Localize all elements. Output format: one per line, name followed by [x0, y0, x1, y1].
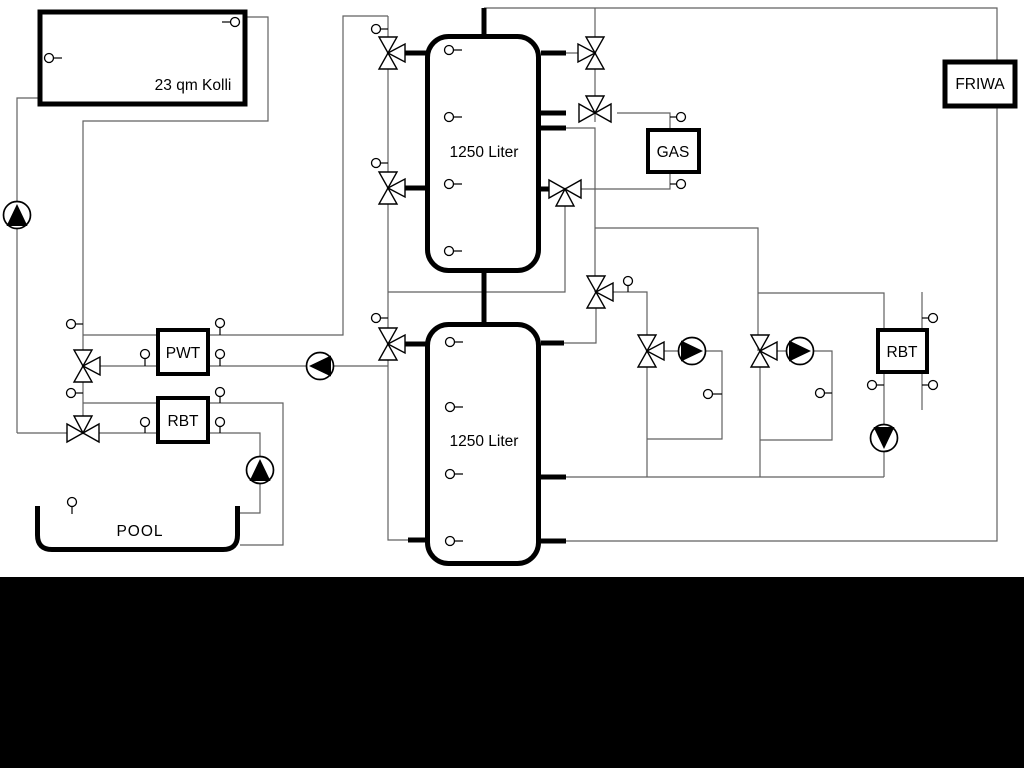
- temperature-sensor: [45, 54, 54, 63]
- temperature-sensor: [446, 403, 455, 412]
- temperature-sensor: [68, 498, 77, 507]
- three-way-valve-tank1-left-mid: [379, 172, 405, 204]
- temperature-sensor: [677, 180, 686, 189]
- three-way-valve-tank2-left: [379, 328, 405, 360]
- temperature-sensor: [445, 113, 454, 122]
- temperature-sensor: [445, 247, 454, 256]
- temperature-sensor: [704, 390, 713, 399]
- rbt-heat-exchanger-pool: RBT: [158, 398, 208, 442]
- pwt-label: PWT: [166, 345, 201, 362]
- gas-label: GAS: [657, 144, 690, 161]
- rbt-heat-exchanger-right: RBT: [878, 330, 927, 372]
- temperature-sensor: [929, 381, 938, 390]
- heating-pump-1: [679, 338, 706, 365]
- temperature-sensor: [677, 113, 686, 122]
- pipe-friwa-loop: [484, 8, 997, 541]
- temperature-sensor: [446, 537, 455, 546]
- temperature-sensor: [216, 319, 225, 328]
- hydraulic-schematic: 23 qm Kolli 1250 Liter 1250 Liter PWT RB…: [0, 0, 1024, 768]
- temperature-sensor: [446, 338, 455, 347]
- buffer-tank-1: 1250 Liter: [428, 37, 539, 271]
- pool-pump: [247, 457, 274, 484]
- three-way-valve-tank1-left-top: [379, 37, 405, 69]
- tank2-label: 1250 Liter: [450, 433, 519, 450]
- pipe-rbt-pool-bottom: [17, 433, 260, 513]
- temperature-sensor: [216, 350, 225, 359]
- three-way-valve-pool: [67, 416, 99, 442]
- temperature-sensor: [929, 314, 938, 323]
- heating-pump-2: [787, 338, 814, 365]
- footer-bar: [0, 577, 1024, 768]
- buffer-tank-2: 1250 Liter: [428, 325, 539, 564]
- pipe-circuit-2: [760, 351, 832, 477]
- three-way-valve-heating-supply: [587, 276, 613, 308]
- friwa-label: FRIWA: [955, 76, 1005, 93]
- schematic-canvas: 23 qm Kolli 1250 Liter 1250 Liter PWT RB…: [0, 0, 1024, 768]
- temperature-sensor: [445, 46, 454, 55]
- temperature-sensor: [816, 389, 825, 398]
- temperature-sensor: [372, 159, 381, 168]
- temperature-sensor: [67, 389, 76, 398]
- three-way-valve-circuit-2: [751, 335, 777, 367]
- temperature-sensor: [216, 388, 225, 397]
- three-way-valve-gas-return: [549, 180, 581, 206]
- solar-pump: [4, 202, 31, 229]
- pwt-charge-pump: [307, 353, 334, 380]
- three-way-valve-circuit-1: [638, 335, 664, 367]
- rbt-right-label: RBT: [887, 344, 919, 361]
- pipe-gas-flow: [617, 113, 670, 128]
- temperature-sensor: [141, 350, 150, 359]
- pipe-valve-header-left: [388, 16, 412, 540]
- temperature-sensor: [868, 381, 877, 390]
- pipe-gas-return: [581, 173, 670, 189]
- temperature-sensor: [372, 314, 381, 323]
- rbt-circulation-pump: [871, 425, 898, 452]
- temperature-sensor: [445, 180, 454, 189]
- pipe-heating-branch-2: [595, 228, 758, 351]
- pool-basin: POOL: [38, 498, 238, 550]
- temperature-sensor: [67, 320, 76, 329]
- collector-label: 23 qm Kolli: [155, 77, 232, 94]
- temperature-sensor: [446, 470, 455, 479]
- pipe-solar-flow: [17, 98, 38, 433]
- pipe-circuit-1: [647, 351, 722, 477]
- pool-label: POOL: [116, 523, 163, 540]
- temperature-sensor: [216, 418, 225, 427]
- temperature-sensor: [372, 25, 381, 34]
- temperature-sensor: [141, 418, 150, 427]
- friwa-fresh-water-module: FRIWA: [945, 62, 1015, 106]
- solar-collector: 23 qm Kolli: [40, 12, 245, 104]
- pipe-rbt-right-supply: [758, 293, 884, 477]
- three-way-valve-pwt: [74, 350, 100, 382]
- temperature-sensor: [624, 277, 633, 286]
- pwt-heat-exchanger: PWT: [158, 330, 208, 374]
- tank1-label: 1250 Liter: [450, 144, 519, 161]
- rbt-left-label: RBT: [168, 413, 200, 430]
- temperature-sensor: [231, 18, 240, 27]
- three-way-valve-tank1-right-top: [578, 37, 604, 69]
- pipe-valve-d-to-e: [596, 292, 647, 351]
- gas-boiler: GAS: [648, 130, 699, 172]
